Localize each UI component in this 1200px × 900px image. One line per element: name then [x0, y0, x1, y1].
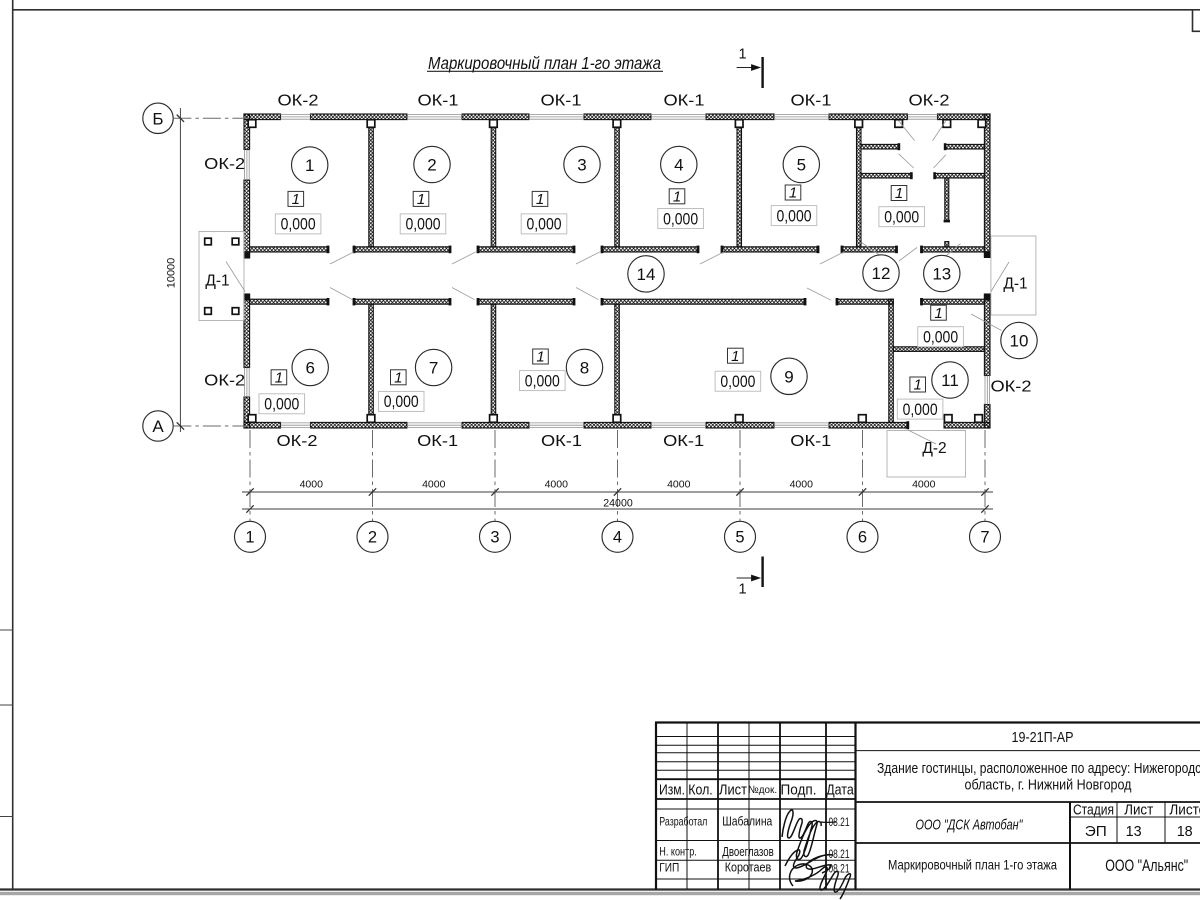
svg-text:10000: 10000 [166, 258, 178, 289]
svg-text:0,000: 0,000 [384, 392, 419, 411]
svg-text:Листов: Листов [1169, 803, 1200, 819]
svg-text:ОК-1: ОК-1 [418, 92, 459, 109]
svg-text:Разработал: Разработал [659, 815, 707, 829]
svg-text:13: 13 [932, 265, 951, 284]
svg-text:Двоеглазов: Двоеглазов [722, 845, 774, 859]
svg-text:0,000: 0,000 [923, 328, 958, 347]
svg-text:5: 5 [735, 529, 744, 547]
svg-text:8: 8 [580, 358, 589, 377]
svg-text:Лист: Лист [1124, 803, 1153, 819]
svg-text:ОК-1: ОК-1 [541, 433, 582, 450]
svg-text:А: А [152, 417, 164, 436]
svg-text:1: 1 [275, 370, 283, 387]
svg-text:область, г. Нижний Новгород: область, г. Нижний Новгород [965, 777, 1132, 794]
svg-text:19-21П-АР: 19-21П-АР [1012, 729, 1074, 746]
svg-text:24000: 24000 [603, 498, 633, 510]
svg-text:ОК-1: ОК-1 [541, 92, 582, 109]
svg-text:ОК-2: ОК-2 [204, 156, 245, 173]
svg-text:1: 1 [914, 377, 922, 394]
svg-text:9: 9 [784, 367, 793, 386]
svg-text:Подп.: Подп. [781, 782, 817, 798]
svg-text:4: 4 [674, 156, 683, 175]
svg-text:1: 1 [245, 529, 254, 547]
svg-text:ООО "ДСК Автобан": ООО "ДСК Автобан" [916, 818, 1024, 834]
svg-text:12: 12 [872, 264, 891, 283]
svg-text:ОК-2: ОК-2 [278, 92, 319, 109]
svg-text:1: 1 [292, 191, 300, 208]
svg-text:Д-1: Д-1 [205, 273, 229, 290]
svg-text:4000: 4000 [545, 479, 569, 491]
svg-text:10: 10 [1010, 332, 1029, 351]
svg-text:ОК-2: ОК-2 [909, 92, 950, 109]
svg-text:11: 11 [941, 371, 959, 390]
svg-text:0,000: 0,000 [884, 208, 919, 227]
svg-text:1: 1 [305, 156, 314, 175]
svg-text:Дата: Дата [826, 782, 854, 798]
svg-text:Шабалина: Шабалина [722, 815, 772, 829]
svg-text:7: 7 [429, 359, 438, 378]
svg-text:Здание гостинцы, расположенное: Здание гостинцы, расположенное по адресу… [877, 760, 1200, 777]
svg-text:1: 1 [739, 47, 747, 63]
svg-text:18: 18 [1177, 823, 1193, 840]
svg-text:0,000: 0,000 [720, 372, 755, 391]
svg-text:4000: 4000 [790, 479, 814, 491]
svg-text:ОК-1: ОК-1 [790, 433, 831, 450]
svg-text:ОК-2: ОК-2 [204, 373, 245, 390]
svg-text:3: 3 [490, 529, 499, 547]
svg-text:ОК-2: ОК-2 [991, 379, 1032, 396]
svg-text:Коротаев: Коротаев [725, 861, 772, 875]
svg-text:14: 14 [637, 265, 656, 284]
svg-text:08.21: 08.21 [829, 817, 850, 829]
svg-text:0,000: 0,000 [527, 215, 562, 234]
svg-text:6: 6 [858, 529, 867, 547]
svg-text:4000: 4000 [667, 479, 691, 491]
svg-text:1: 1 [895, 185, 903, 202]
svg-text:6: 6 [305, 359, 314, 378]
svg-text:Б: Б [152, 109, 163, 128]
svg-text:Стадия: Стадия [1073, 803, 1114, 819]
svg-text:2: 2 [427, 156, 436, 175]
svg-text:Д-2: Д-2 [922, 440, 946, 457]
svg-text:1: 1 [394, 370, 402, 387]
svg-text:1: 1 [536, 349, 544, 366]
svg-text:4000: 4000 [422, 479, 446, 491]
svg-text:1: 1 [417, 191, 425, 208]
svg-text:0,000: 0,000 [663, 209, 698, 228]
svg-text:Маркировочный план 1-го этажа: Маркировочный план 1-го этажа [888, 857, 1057, 873]
svg-text:ОК-1: ОК-1 [417, 433, 458, 450]
svg-text:0,000: 0,000 [264, 395, 299, 414]
svg-text:Кол.: Кол. [688, 782, 713, 798]
svg-text:2: 2 [368, 529, 377, 547]
svg-text:4: 4 [613, 529, 622, 547]
svg-text:1: 1 [731, 348, 739, 365]
svg-text:1: 1 [739, 582, 747, 598]
svg-text:5: 5 [797, 156, 806, 175]
svg-text:ООО "Альянс": ООО "Альянс" [1105, 857, 1188, 875]
svg-text:ОК-1: ОК-1 [664, 92, 705, 109]
svg-text:Изм.: Изм. [659, 782, 685, 798]
svg-text:№док.: №док. [748, 784, 777, 796]
svg-text:ОК-1: ОК-1 [791, 92, 832, 109]
svg-text:0,000: 0,000 [903, 400, 938, 419]
svg-text:0,000: 0,000 [525, 371, 560, 390]
svg-text:ГИП: ГИП [659, 861, 679, 875]
svg-text:08.21: 08.21 [829, 863, 850, 875]
svg-text:0,000: 0,000 [406, 215, 441, 234]
svg-text:1: 1 [536, 191, 544, 208]
svg-text:1: 1 [673, 189, 681, 206]
svg-text:Д-1: Д-1 [1003, 276, 1027, 293]
svg-text:Лист: Лист [719, 782, 747, 798]
svg-text:1: 1 [934, 305, 942, 322]
svg-text:ОК-2: ОК-2 [277, 433, 318, 450]
svg-text:ЭП: ЭП [1085, 823, 1107, 840]
svg-text:0,000: 0,000 [777, 206, 812, 225]
svg-text:Н. контр.: Н. контр. [659, 845, 697, 859]
svg-text:Маркировочный план 1-го этажа: Маркировочный план 1-го этажа [428, 53, 661, 73]
svg-text:1: 1 [789, 185, 797, 202]
svg-text:ОК-1: ОК-1 [663, 433, 704, 450]
svg-text:0,000: 0,000 [281, 215, 316, 234]
svg-text:4000: 4000 [300, 479, 324, 491]
svg-text:4000: 4000 [912, 479, 936, 491]
svg-text:3: 3 [577, 156, 586, 175]
svg-text:7: 7 [980, 529, 989, 547]
svg-text:13: 13 [1126, 823, 1142, 840]
